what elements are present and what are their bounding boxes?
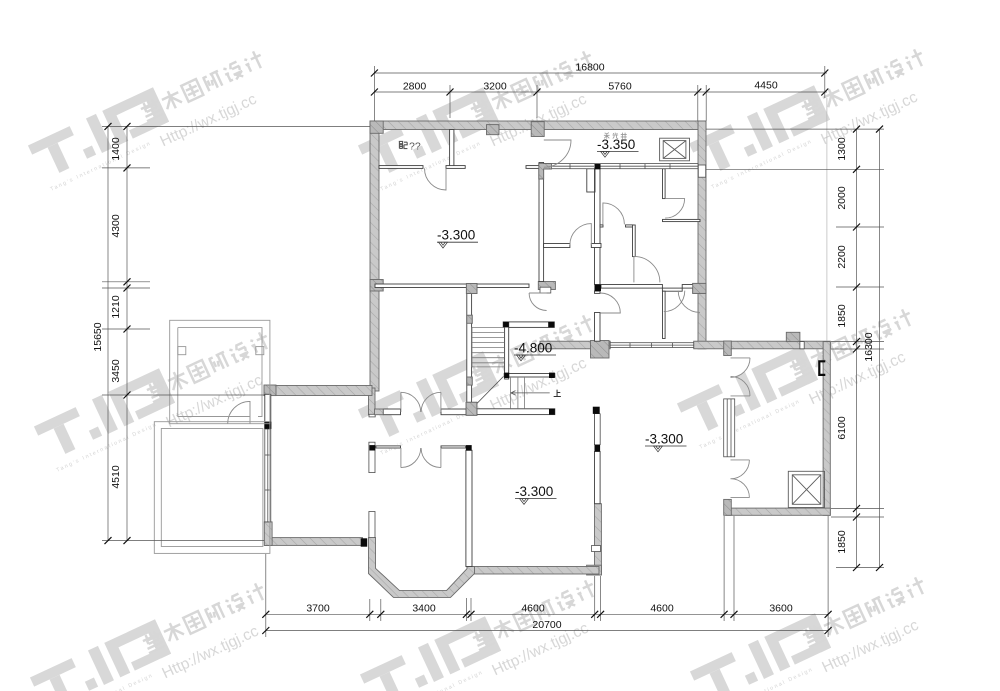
svg-text:1850: 1850 bbox=[836, 530, 848, 554]
svg-text:-3.300: -3.300 bbox=[515, 484, 553, 499]
svg-text:3400: 3400 bbox=[412, 603, 436, 615]
svg-text:3200: 3200 bbox=[483, 81, 507, 93]
svg-text:20700: 20700 bbox=[532, 619, 561, 631]
svg-text:4600: 4600 bbox=[521, 603, 545, 615]
svg-text:3700: 3700 bbox=[306, 603, 330, 615]
svg-text:4510: 4510 bbox=[110, 465, 122, 489]
svg-text:1400: 1400 bbox=[110, 137, 122, 161]
svg-text:5760: 5760 bbox=[608, 81, 632, 93]
svg-text:1210: 1210 bbox=[110, 295, 122, 319]
svg-text:4450: 4450 bbox=[754, 80, 778, 92]
svg-text:15650: 15650 bbox=[92, 322, 104, 351]
svg-text:3600: 3600 bbox=[769, 603, 793, 615]
svg-text:2200: 2200 bbox=[836, 245, 848, 269]
svg-text:16300: 16300 bbox=[863, 332, 875, 361]
svg-text:-3.350: -3.350 bbox=[597, 137, 635, 152]
svg-text:3450: 3450 bbox=[110, 359, 122, 383]
svg-text:2000: 2000 bbox=[836, 186, 848, 210]
svg-text:4600: 4600 bbox=[650, 603, 674, 615]
svg-text:2800: 2800 bbox=[403, 81, 427, 93]
svg-text:-3.300: -3.300 bbox=[645, 432, 683, 447]
svg-text:6100: 6100 bbox=[836, 416, 848, 440]
svg-text:4300: 4300 bbox=[110, 214, 122, 238]
svg-text:??: ?? bbox=[409, 141, 421, 153]
svg-text:16800: 16800 bbox=[575, 62, 604, 74]
svg-text:1300: 1300 bbox=[836, 137, 848, 161]
svg-text:-4.800: -4.800 bbox=[514, 341, 552, 356]
svg-text:1850: 1850 bbox=[836, 304, 848, 328]
svg-text:-3.300: -3.300 bbox=[437, 228, 475, 243]
